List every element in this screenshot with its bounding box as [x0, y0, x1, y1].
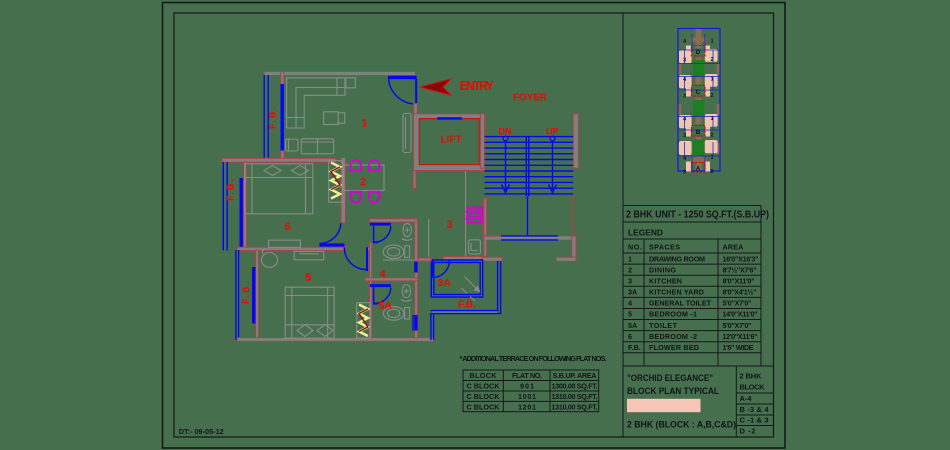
svg-text:901: 901 [520, 382, 534, 391]
svg-text:S.B.UP. AREA: S.B.UP. AREA [553, 371, 597, 380]
svg-text:1310.00 SQ.FT.: 1310.00 SQ.FT. [552, 403, 598, 412]
svg-text:DRAWING ROOM: DRAWING ROOM [649, 254, 705, 263]
svg-text:3: 3 [683, 94, 686, 100]
svg-text:DN: DN [499, 127, 512, 137]
svg-text:GENERAL TOILET: GENERAL TOILET [649, 299, 712, 308]
svg-text:ENTRY: ENTRY [460, 79, 495, 93]
svg-text:14'0"X11'0": 14'0"X11'0" [723, 310, 758, 319]
svg-text:* ADDITIONAL TERRACE ON FOLLOW: * ADDITIONAL TERRACE ON FOLLOWING FLAT N… [460, 354, 607, 363]
svg-text:1310.00 SQ.FT.: 1310.00 SQ.FT. [552, 392, 598, 401]
svg-text:F.B.: F.B. [241, 282, 251, 304]
svg-text:3A: 3A [438, 277, 452, 289]
svg-text:3: 3 [683, 170, 686, 176]
svg-text:F.B.: F.B. [628, 343, 641, 352]
svg-text:2: 2 [711, 133, 714, 139]
svg-text:1'6" WIDE: 1'6" WIDE [723, 343, 754, 352]
svg-text:3: 3 [628, 277, 632, 286]
svg-text:C BLOCK: C BLOCK [467, 392, 501, 401]
svg-text:B -3 & 4: B -3 & 4 [740, 405, 770, 414]
svg-text:BEDROOM -1: BEDROOM -1 [649, 310, 697, 319]
svg-text:4: 4 [628, 299, 632, 308]
svg-text:AREA: AREA [723, 243, 744, 252]
svg-text:1: 1 [711, 77, 714, 83]
svg-text:TOILET: TOILET [649, 321, 678, 330]
svg-text:"ORCHID ELEGANCE": "ORCHID ELEGANCE" [627, 373, 713, 383]
svg-text:UP: UP [546, 127, 559, 137]
svg-text:KITCHEN YARD: KITCHEN YARD [649, 288, 704, 297]
svg-text:1001: 1001 [518, 392, 536, 401]
svg-text:DINING: DINING [649, 265, 676, 274]
svg-text:C BLOCK: C BLOCK [467, 382, 501, 391]
svg-text:5A: 5A [628, 321, 637, 330]
svg-text:5'0"X7'0": 5'0"X7'0" [723, 299, 752, 308]
svg-text:1: 1 [362, 118, 368, 130]
svg-text:KITCHEN: KITCHEN [649, 277, 682, 286]
svg-text:BLOCK PLAN TYPICAL: BLOCK PLAN TYPICAL [627, 386, 719, 396]
svg-text:5'0"X7'0": 5'0"X7'0" [723, 321, 752, 330]
svg-text:BEDROOM -2: BEDROOM -2 [649, 332, 697, 341]
svg-text:3A: 3A [628, 288, 637, 297]
svg-text:C BLOCK: C BLOCK [467, 403, 501, 412]
svg-text:2 BHK UNIT - 1250 SQ.FT.(S.B.U: 2 BHK UNIT - 1250 SQ.FT.(S.B.UP) [626, 209, 769, 221]
svg-text:F.B.: F.B. [226, 179, 236, 201]
svg-text:12'0"X11'6": 12'0"X11'6" [723, 332, 758, 341]
svg-text:1: 1 [711, 39, 714, 45]
svg-text:D: D [696, 49, 701, 56]
svg-text:2: 2 [360, 177, 366, 189]
svg-text:A-4: A-4 [740, 394, 753, 403]
svg-text:8'0"X11'0": 8'0"X11'0" [723, 277, 755, 286]
svg-text:1: 1 [711, 116, 714, 122]
svg-text:4: 4 [380, 269, 387, 281]
svg-text:DT:- 09-05-12: DT:- 09-05-12 [179, 427, 224, 436]
svg-text:D -2: D -2 [740, 427, 756, 436]
svg-text:A: A [696, 166, 701, 173]
svg-text:1: 1 [711, 155, 714, 161]
svg-text:1201: 1201 [518, 403, 536, 412]
svg-text:FLOWER BED: FLOWER BED [649, 343, 699, 352]
svg-text:FLAT NO.: FLAT NO. [512, 371, 542, 380]
svg-text:3: 3 [683, 133, 686, 139]
svg-text:2: 2 [711, 57, 714, 63]
svg-text:2 BHK (BLOCK : A,B,C&D): 2 BHK (BLOCK : A,B,C&D) [627, 420, 736, 430]
svg-text:3: 3 [447, 219, 453, 231]
svg-text:SPACES: SPACES [649, 243, 680, 252]
svg-text:8'0"X4'1½": 8'0"X4'1½" [723, 288, 757, 297]
svg-text:F.B.: F.B. [268, 107, 278, 129]
svg-text:C -1 & 3: C -1 & 3 [740, 416, 769, 425]
svg-text:BLOCK: BLOCK [740, 383, 766, 392]
svg-text:F.B.: F.B. [458, 300, 476, 311]
svg-text:5: 5 [305, 272, 311, 284]
svg-text:2: 2 [628, 265, 632, 274]
svg-text:NO.: NO. [628, 243, 642, 252]
svg-text:1300.00 SQ.FT.: 1300.00 SQ.FT. [552, 382, 598, 391]
svg-text:1: 1 [628, 254, 632, 263]
svg-text:C: C [696, 89, 701, 96]
svg-text:BLOCK: BLOCK [470, 371, 498, 380]
svg-text:16'0"X16'3": 16'0"X16'3" [723, 254, 759, 263]
svg-text:6: 6 [285, 221, 291, 233]
svg-text:2: 2 [711, 93, 714, 99]
svg-text:LIFT: LIFT [441, 135, 462, 146]
svg-text:LEGEND: LEGEND [628, 228, 663, 238]
svg-text:6: 6 [628, 332, 632, 341]
svg-text:5: 5 [628, 310, 632, 319]
svg-text:B: B [696, 129, 701, 136]
svg-text:8'7½"X7'6": 8'7½"X7'6" [723, 265, 757, 274]
svg-text:2 BHK: 2 BHK [740, 372, 763, 381]
svg-text:5A: 5A [379, 300, 393, 312]
svg-text:3: 3 [683, 58, 686, 64]
svg-text:FOYER: FOYER [513, 93, 548, 104]
svg-text:2: 2 [711, 169, 714, 175]
